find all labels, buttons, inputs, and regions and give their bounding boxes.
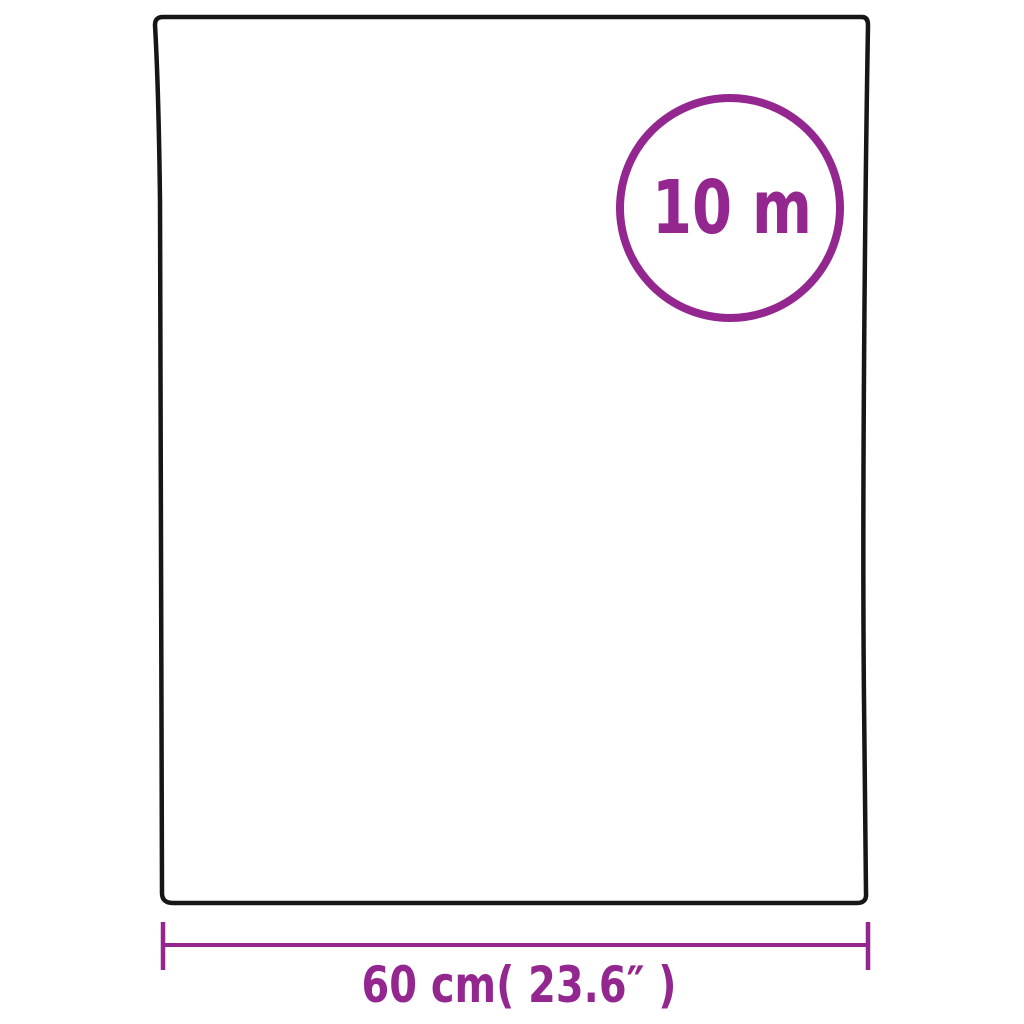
width-dimension-label: 60 cm( 23.6″ )	[362, 956, 677, 1014]
diagram-canvas: 10 m 60 cm( 23.6″ )	[0, 0, 1024, 1024]
product-dimension-diagram: 10 m 60 cm( 23.6″ )	[0, 0, 1024, 1024]
width-dimension: 60 cm( 23.6″ )	[163, 922, 868, 1014]
roll-length-badge: 10 m	[620, 98, 840, 318]
roll-length-label: 10 m	[652, 165, 812, 251]
